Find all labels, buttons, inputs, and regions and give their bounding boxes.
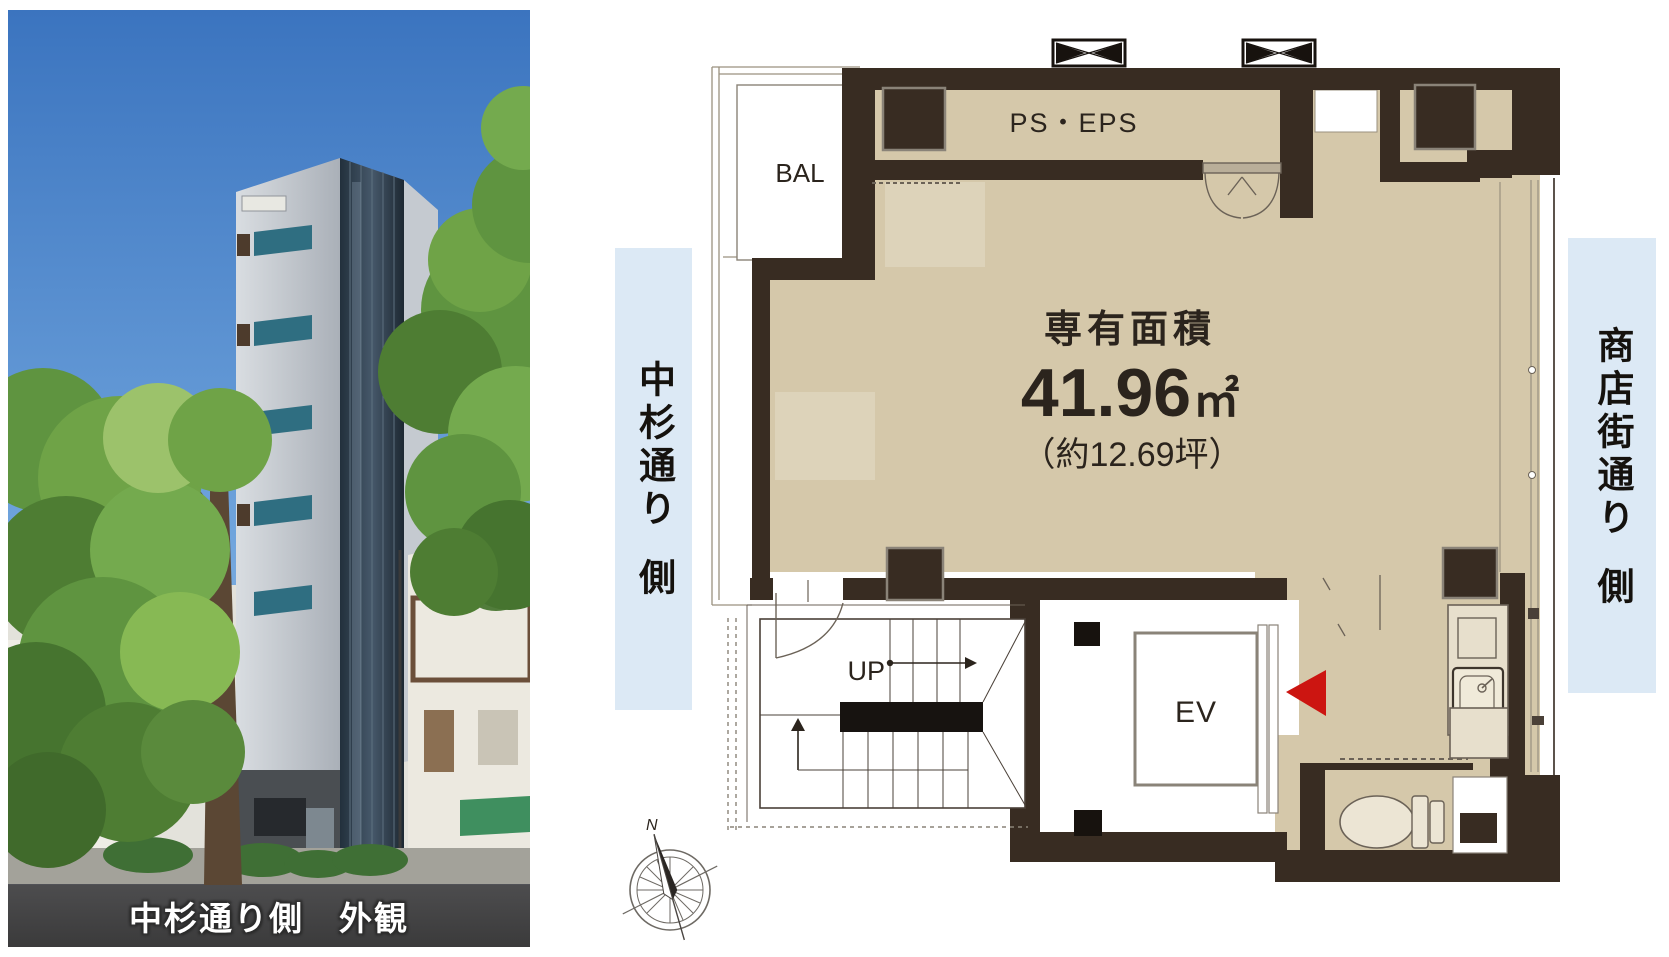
balcony-label: BAL	[775, 158, 824, 188]
cabinet	[1450, 708, 1508, 758]
exterior-photo-image	[8, 10, 530, 947]
elevator-label: EV	[1175, 696, 1217, 729]
photo-caption: 中杉通り側 外観	[8, 885, 530, 947]
area-title: 専有面積	[1044, 309, 1216, 351]
street-name-left: 中杉通り	[627, 360, 681, 532]
stair-landing	[840, 702, 983, 732]
floor-plan: BAL	[680, 30, 1560, 895]
building-sign	[242, 196, 286, 211]
compass-north-label: N	[646, 817, 658, 834]
toilet-fixture	[1340, 796, 1414, 848]
shop-awning	[460, 796, 530, 836]
area-tsubo: （約12.69坪）	[1021, 436, 1242, 474]
area-unit: ㎡	[1193, 374, 1239, 426]
staircase: UP	[728, 580, 1028, 830]
stairs-up-label: UP	[847, 656, 885, 686]
shaft-opening	[1315, 90, 1377, 132]
street-side-right: 側	[1585, 567, 1639, 610]
ps-eps-label: PS・EPS	[1009, 108, 1138, 138]
area-value: 41.96	[1021, 355, 1191, 431]
compass-icon: N	[598, 752, 748, 947]
street-band-right: 商店街通り 側	[1568, 238, 1656, 693]
exterior-photo: 中杉通り側 外観	[8, 10, 530, 947]
kitchenette	[1448, 605, 1508, 758]
vent-icon	[1053, 40, 1315, 66]
street-tree	[8, 368, 272, 885]
street-name-right: 商店街通り	[1585, 326, 1639, 541]
elevator: EV	[1040, 600, 1299, 836]
compass: N	[598, 752, 748, 952]
street-side-left: 側	[627, 558, 681, 601]
area-text: 専有面積 41.96㎡ （約12.69坪）	[1021, 309, 1243, 474]
